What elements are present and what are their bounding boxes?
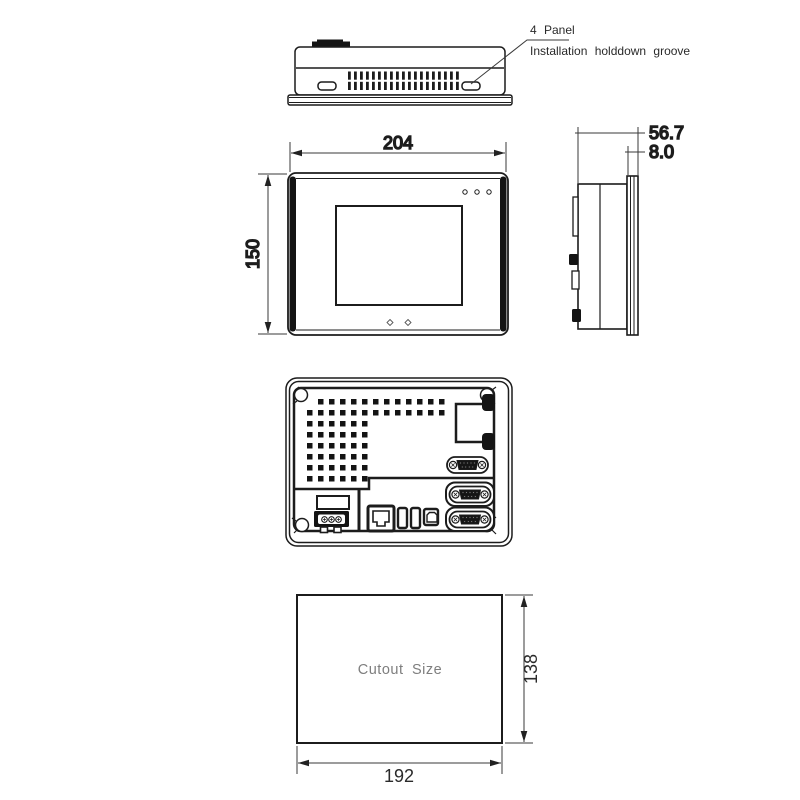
side-bezel-plate — [627, 176, 638, 335]
top-connector-ridge — [317, 40, 343, 43]
drawing-canvas: 4 Panel Installation holddown groove 204… — [0, 0, 800, 800]
front-left-trim — [290, 177, 297, 332]
cutout-view: Cutout Size 138 192 — [297, 595, 541, 786]
side-connector-bump-3 — [572, 309, 581, 322]
technical-drawing: 4 Panel Installation holddown groove 204… — [0, 0, 800, 800]
dim-192-text: 192 — [384, 766, 414, 786]
ethernet-port — [368, 506, 394, 531]
side-view: 56.7 8.0 — [569, 123, 684, 335]
clip-top — [482, 394, 495, 411]
dim-150-text: 150 — [243, 239, 263, 269]
side-connector-bump-2 — [572, 271, 579, 289]
dim-138-text: 138 — [521, 654, 541, 684]
power-label-plate — [317, 496, 349, 509]
annotation-text-line1: 4 Panel — [530, 23, 575, 37]
side-dim-lines — [575, 127, 645, 183]
side-cover-bump — [573, 197, 578, 236]
terminal-tab-2 — [334, 527, 341, 533]
top-bezel-plate — [288, 95, 512, 105]
terminal-screws — [322, 517, 342, 523]
holddown-groove-right — [462, 82, 480, 90]
clip-bottom — [482, 433, 495, 450]
db9-connector-1 — [447, 457, 488, 473]
db9-connector-2 — [450, 487, 491, 503]
slot-port-1 — [398, 508, 407, 528]
dim-56-7-text: 56.7 — [649, 123, 684, 143]
annotation-text-line2: Installation holddown groove — [530, 44, 690, 58]
back-view — [286, 378, 512, 546]
db9-connector-3 — [450, 512, 491, 528]
holddown-groove-left — [318, 82, 336, 90]
cutout-label: Cutout Size — [358, 662, 442, 678]
dim-8-0-text: 8.0 — [649, 142, 674, 162]
front-right-trim — [500, 177, 507, 332]
front-view: 204 150 — [243, 133, 508, 335]
top-view — [288, 40, 512, 106]
side-connector-bump-1 — [569, 254, 578, 265]
terminal-tab-1 — [321, 527, 328, 533]
dim-204-text: 204 — [383, 133, 413, 153]
slot-port-2 — [411, 508, 420, 528]
side-body-outline — [578, 184, 627, 329]
screen-rect — [336, 206, 462, 305]
